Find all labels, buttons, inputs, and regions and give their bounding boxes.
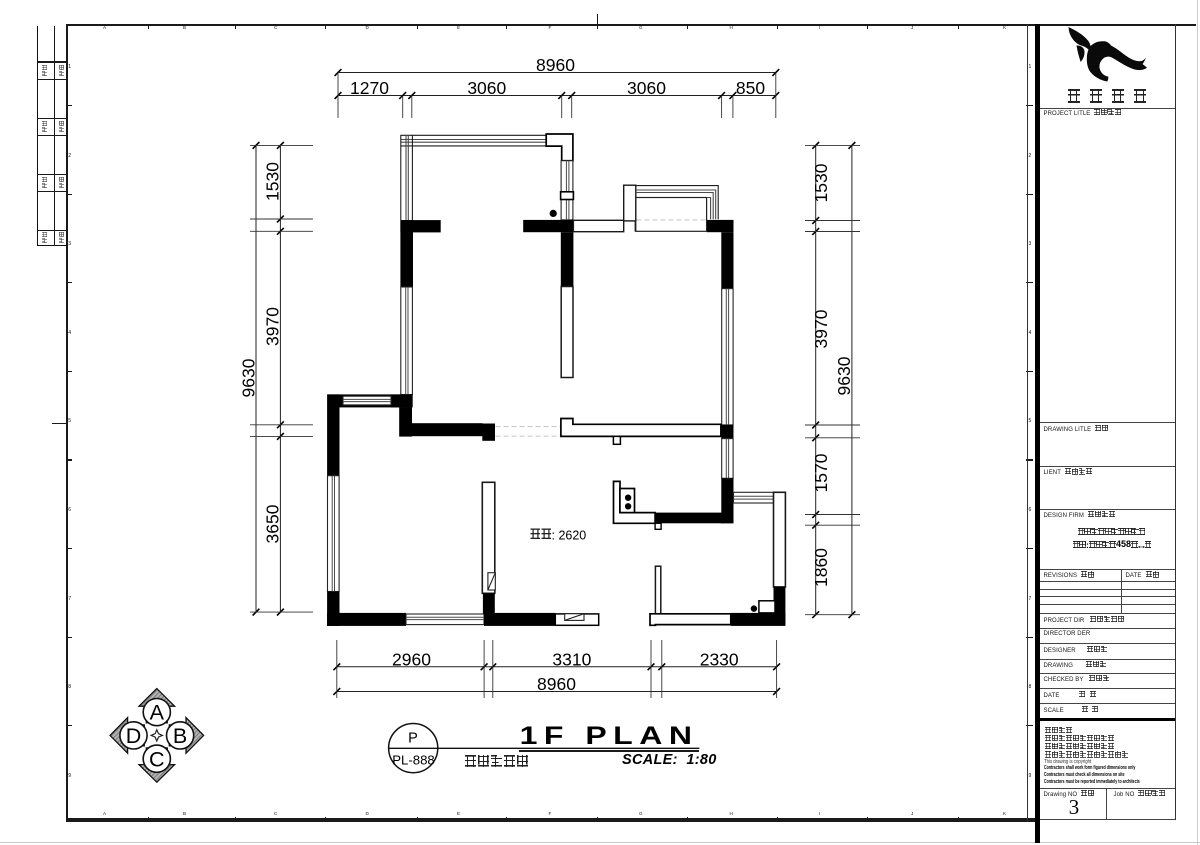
svg-text:9630: 9630 — [834, 356, 854, 395]
svg-text:P: P — [408, 731, 418, 747]
svg-text:2960: 2960 — [392, 649, 431, 669]
svg-text:3970: 3970 — [811, 309, 831, 348]
svg-text:1530: 1530 — [811, 163, 831, 202]
svg-text:3310: 3310 — [552, 649, 591, 669]
svg-text:8960: 8960 — [537, 674, 576, 694]
svg-text:PL-888: PL-888 — [392, 753, 435, 768]
svg-text:9630: 9630 — [238, 358, 258, 397]
svg-text:B: B — [173, 724, 187, 748]
svg-text:3970: 3970 — [263, 307, 283, 346]
svg-text:: 2620: : 2620 — [552, 528, 587, 542]
svg-text:1860: 1860 — [811, 548, 831, 587]
svg-text:D: D — [126, 724, 142, 748]
svg-text:C: C — [149, 747, 165, 771]
svg-text:2330: 2330 — [700, 649, 739, 669]
svg-text:1530: 1530 — [263, 162, 283, 201]
svg-text:3650: 3650 — [263, 504, 283, 543]
svg-text:A: A — [150, 701, 165, 725]
svg-text:8960: 8960 — [536, 55, 575, 75]
svg-text:3060: 3060 — [627, 78, 666, 98]
svg-text:850: 850 — [736, 78, 765, 98]
svg-text:3060: 3060 — [467, 78, 506, 98]
svg-text:1570: 1570 — [811, 453, 831, 492]
svg-text:1270: 1270 — [350, 78, 389, 98]
